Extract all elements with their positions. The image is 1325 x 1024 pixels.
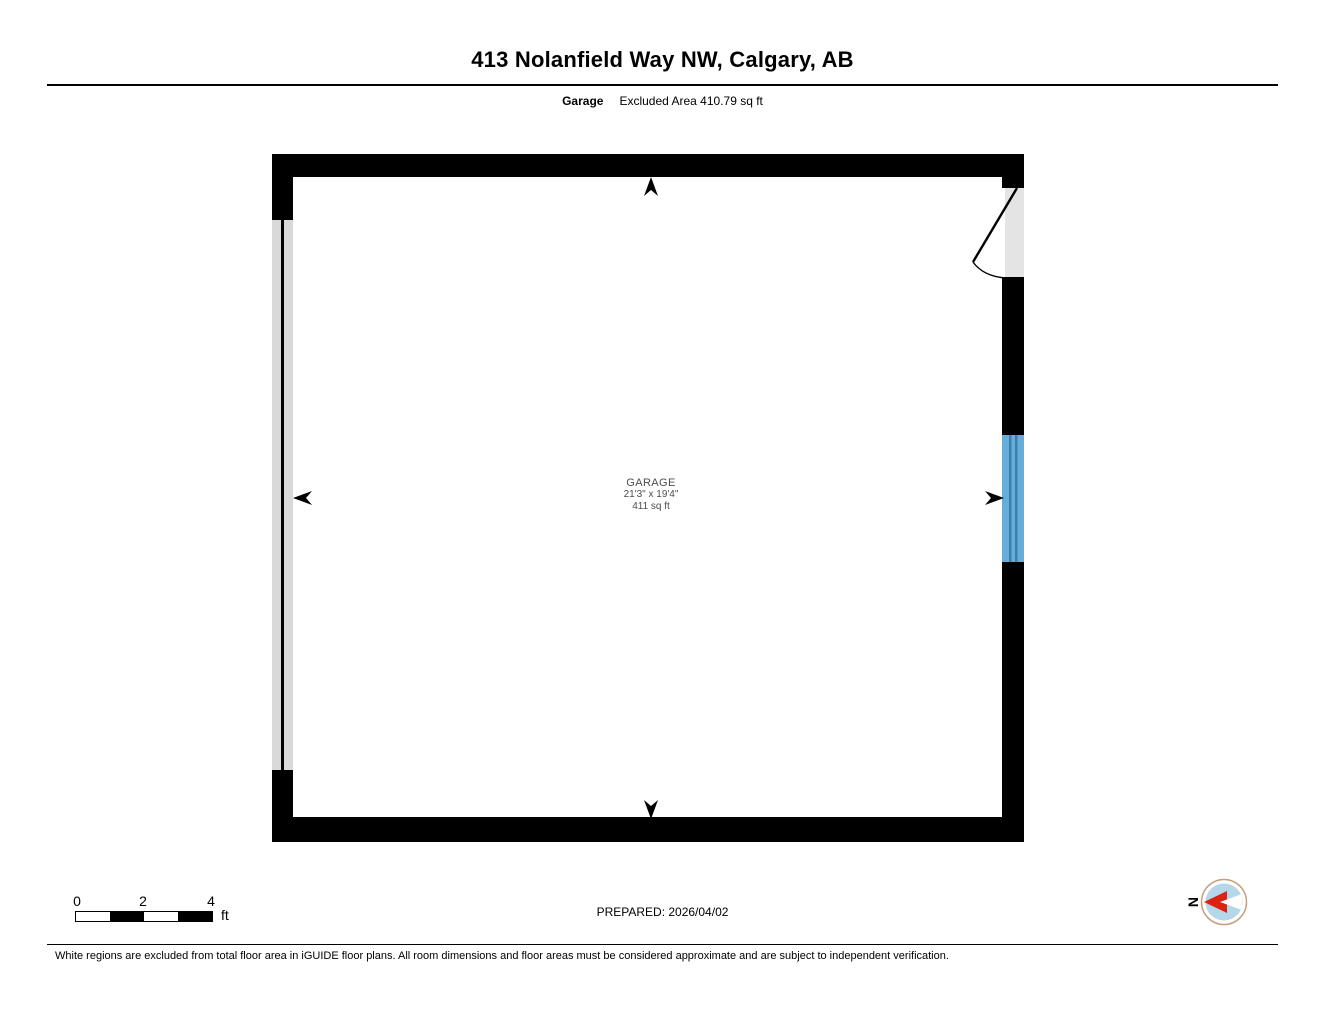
compass-icon xyxy=(1198,876,1250,928)
excluded-area-label: Excluded Area 410.79 sq ft xyxy=(619,94,762,108)
disclaimer-text: White regions are excluded from total fl… xyxy=(55,950,949,962)
wall-left-top xyxy=(272,154,293,220)
floor-subtitle: GarageExcluded Area 410.79 sq ft xyxy=(0,94,1325,108)
window-glass xyxy=(1002,435,1024,562)
wall-left-bottom xyxy=(272,770,293,842)
dimension-arrow-right xyxy=(985,491,1004,505)
compass-north-label: N xyxy=(1185,891,1201,913)
room-dimensions: 21'3" x 19'4" xyxy=(551,489,751,501)
prepared-date: PREPARED: 2026/04/02 xyxy=(0,905,1325,919)
wall-top xyxy=(272,154,1024,177)
wall-right-top xyxy=(1002,154,1024,188)
window-pane-line-2 xyxy=(1015,435,1018,562)
footer-divider xyxy=(47,944,1278,945)
wall-bottom xyxy=(272,817,1024,842)
room-area: 411 sq ft xyxy=(551,501,751,513)
window xyxy=(1002,435,1024,562)
dimension-arrow-up xyxy=(644,177,658,196)
wall-right-bottom xyxy=(1002,562,1024,842)
floor-name-label: Garage xyxy=(562,94,603,108)
garage-door-line xyxy=(281,220,284,770)
dimension-arrow-left xyxy=(293,491,312,505)
header-divider xyxy=(47,84,1278,86)
room-label: GARAGE 21'3" x 19'4" 411 sq ft xyxy=(551,477,751,513)
room-name: GARAGE xyxy=(551,477,751,489)
door-swing-arc xyxy=(973,262,1005,278)
entry-door xyxy=(973,188,1024,278)
floor-plan-page: 413 Nolanfield Way NW, Calgary, AB Garag… xyxy=(0,0,1325,1024)
wall-right-mid xyxy=(1002,277,1024,435)
page-title: 413 Nolanfield Way NW, Calgary, AB xyxy=(0,47,1325,73)
window-pane-line-1 xyxy=(1009,435,1012,562)
dimension-arrow-down xyxy=(644,800,658,819)
garage-door xyxy=(272,220,293,770)
